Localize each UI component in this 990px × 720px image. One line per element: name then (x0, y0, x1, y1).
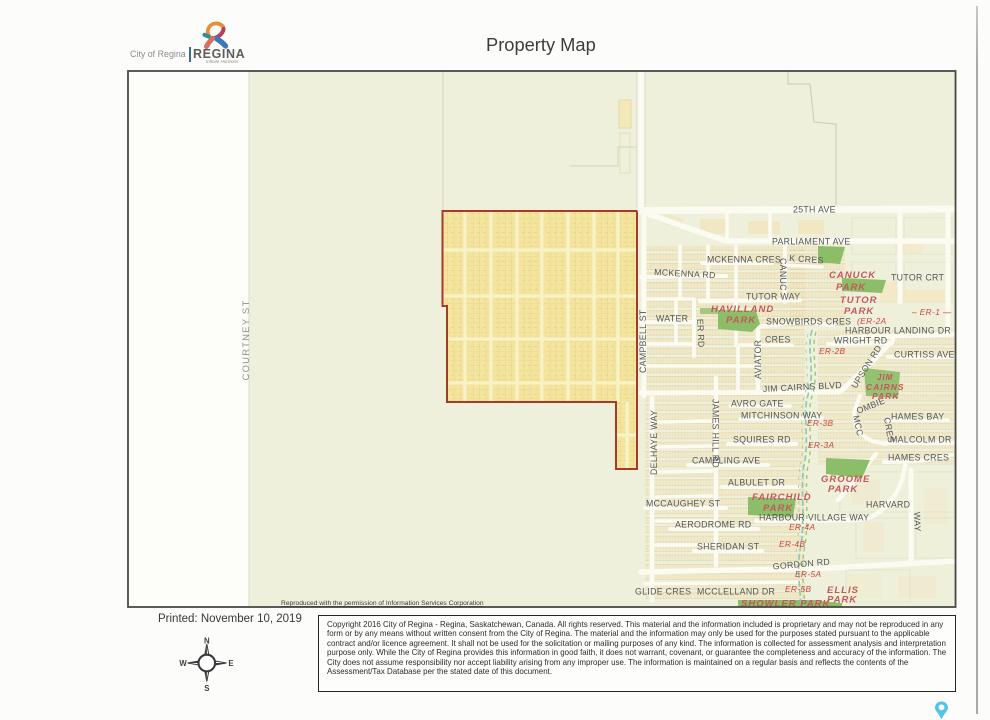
svg-text:PARK: PARK (836, 282, 866, 293)
svg-text:WATER: WATER (656, 314, 688, 324)
svg-text:CAMPBELL ST: CAMPBELL ST (638, 309, 648, 373)
svg-text:ER-5B: ER-5B (785, 584, 812, 594)
svg-text:MCCAUGHEY ST: MCCAUGHEY ST (646, 499, 721, 509)
svg-text:ER-2B: ER-2B (819, 346, 846, 356)
svg-text:HARBOUR LANDING DR: HARBOUR LANDING DR (845, 326, 951, 336)
svg-text:GLIDE CRES: GLIDE CRES (635, 587, 691, 597)
svg-text:25TH AVE: 25TH AVE (793, 205, 836, 215)
svg-text:ER-4A: ER-4A (789, 522, 816, 532)
svg-text:HAMES BAY: HAMES BAY (891, 412, 944, 422)
svg-text:SNOWBIRDS CRES: SNOWBIRDS CRES (766, 317, 851, 327)
svg-text:JIM: JIM (877, 373, 893, 382)
svg-text:MCKENNA CRES: MCKENNA CRES (707, 255, 781, 265)
svg-text:HAMES CRES: HAMES CRES (888, 453, 949, 463)
svg-text:PARK: PARK (763, 503, 793, 514)
svg-text:W: W (179, 659, 187, 668)
svg-text:(ER-2A: (ER-2A (857, 316, 887, 326)
svg-text:ER-4B: ER-4B (779, 539, 806, 549)
svg-text:N: N (204, 637, 210, 646)
svg-text:MCCLELLAND DR: MCCLELLAND DR (697, 587, 775, 597)
svg-text:DELHAYE WAY: DELHAYE WAY (649, 410, 659, 475)
svg-text:– ER-1 —: – ER-1 — (911, 307, 952, 317)
svg-text:PARK: PARK (872, 391, 899, 401)
svg-text:Reproduced with the permission: Reproduced with the permission of Inform… (281, 600, 484, 607)
svg-text:AVRO GATE: AVRO GATE (731, 399, 784, 409)
svg-text:PARLIAMENT AVE: PARLIAMENT AVE (772, 237, 851, 247)
svg-text:HARVARD: HARVARD (866, 500, 910, 510)
svg-text:TUTOR: TUTOR (840, 295, 878, 306)
svg-text:TUTOR WAY: TUTOR WAY (746, 292, 800, 302)
svg-text:SQUIRES RD: SQUIRES RD (733, 435, 791, 445)
svg-text:FAIRCHILD: FAIRCHILD (752, 492, 812, 503)
svg-text:CRES: CRES (765, 335, 791, 345)
svg-text:PARK: PARK (827, 595, 857, 606)
svg-text:PARK: PARK (726, 315, 756, 326)
svg-text:ER-3B: ER-3B (807, 418, 834, 428)
svg-text:WAY: WAY (912, 512, 923, 532)
svg-text:COURTNEY ST: COURTNEY ST (241, 300, 252, 381)
svg-text:S: S (204, 684, 209, 693)
svg-text:ER-3A: ER-3A (808, 440, 835, 450)
svg-text:ER-5A: ER-5A (795, 569, 822, 579)
svg-text:AVIATOR: AVIATOR (753, 340, 763, 379)
svg-text:TUTOR CRT: TUTOR CRT (891, 273, 945, 283)
svg-text:CAMPLING AVE: CAMPLING AVE (692, 456, 760, 466)
svg-text:CURTISS AVE: CURTISS AVE (894, 350, 955, 360)
svg-text:ER RD: ER RD (695, 319, 706, 348)
svg-text:E: E (228, 659, 233, 668)
svg-text:CANUC: CANUC (778, 258, 788, 291)
svg-text:HARBOUR VILLAGE WAY: HARBOUR VILLAGE WAY (759, 513, 869, 523)
svg-text:ALBULET DR: ALBULET DR (728, 478, 785, 488)
svg-text:MALCOLM DR: MALCOLM DR (890, 435, 952, 445)
svg-text:HAVILLAND: HAVILLAND (711, 304, 774, 315)
svg-text:WRIGHT RD: WRIGHT RD (834, 336, 887, 346)
svg-text:CANUCK: CANUCK (829, 270, 876, 281)
svg-text:AERODROME RD: AERODROME RD (675, 520, 751, 530)
svg-text:SHERIDAN ST: SHERIDAN ST (697, 542, 760, 552)
svg-text:PARK: PARK (828, 484, 858, 495)
